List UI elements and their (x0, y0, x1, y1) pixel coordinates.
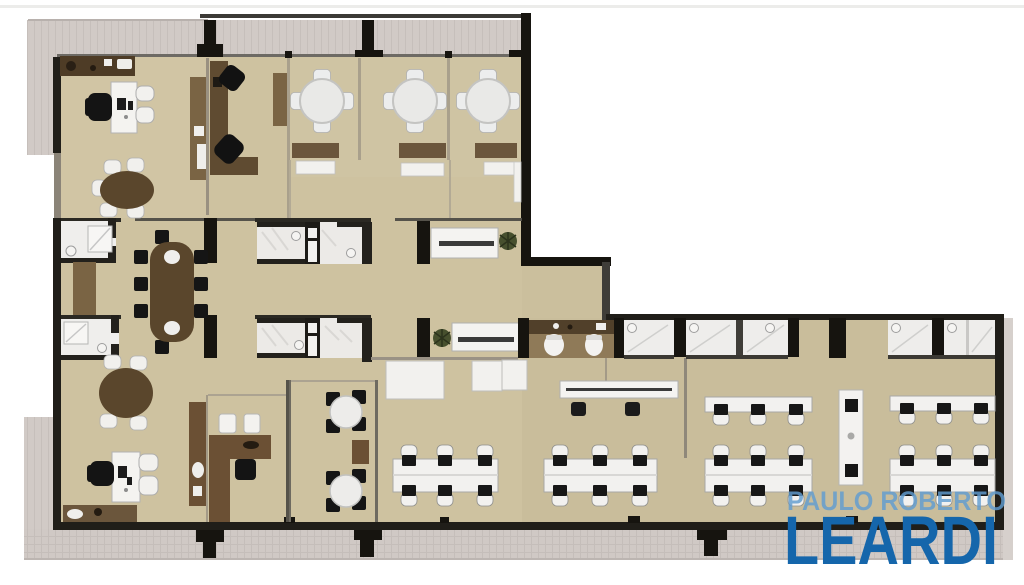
svg-text:LEARDI: LEARDI (784, 502, 998, 579)
